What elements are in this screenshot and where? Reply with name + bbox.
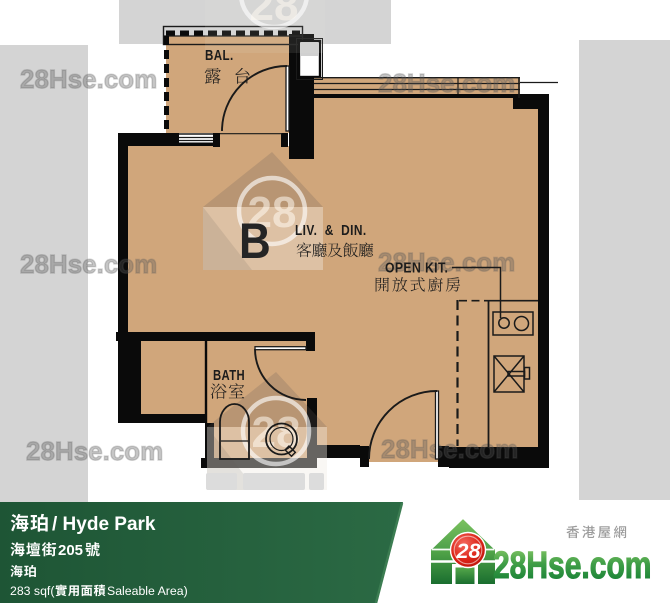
svg-text:BAL.: BAL. <box>205 47 234 64</box>
svg-text:205: 205 <box>58 542 83 559</box>
svg-text:OPEN KIT.: OPEN KIT. <box>385 260 448 276</box>
svg-text:Saleable Area): Saleable Area) <box>107 584 188 598</box>
svg-text:28: 28 <box>250 0 299 30</box>
svg-text:28: 28 <box>456 539 481 563</box>
svg-text:283 sqf(: 283 sqf( <box>10 584 55 598</box>
svg-text:28Hse.com: 28Hse.com <box>378 68 515 98</box>
svg-text:BATH: BATH <box>213 367 245 384</box>
svg-text:28Hse.com: 28Hse.com <box>26 436 163 466</box>
svg-text:28Hse.com: 28Hse.com <box>20 64 157 94</box>
svg-text:LIV. & DIN.: LIV. & DIN. <box>295 222 367 238</box>
svg-text:B: B <box>239 212 271 268</box>
svg-text:28Hse.com: 28Hse.com <box>381 434 518 464</box>
svg-text:/ Hyde Park: / Hyde Park <box>52 514 156 535</box>
svg-text:28Hse.com: 28Hse.com <box>20 249 157 279</box>
svg-text:28Hse.com: 28Hse.com <box>493 545 651 587</box>
